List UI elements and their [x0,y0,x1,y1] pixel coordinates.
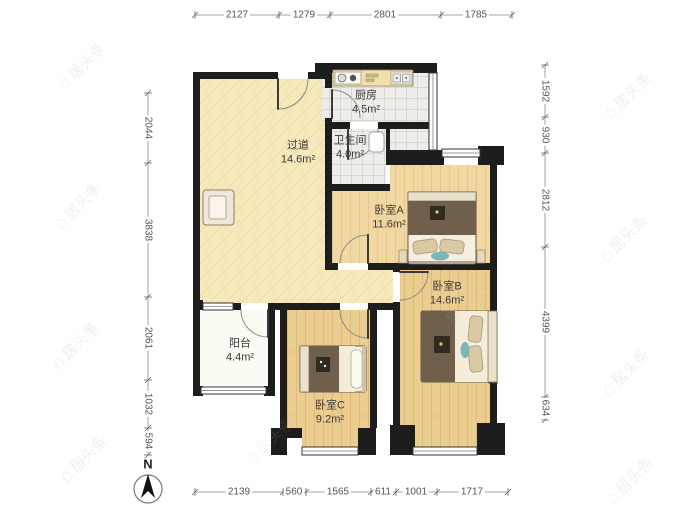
hallway-armchair [203,190,234,225]
dimension-left: 2061 [143,325,154,351]
kitchen-window [429,73,437,150]
dimension-left: 594 [143,431,154,452]
floor-plan-svg [0,0,680,510]
dimension-right: 2812 [540,187,551,213]
dimension-top: 2127 [224,10,250,21]
dimension-top: 1279 [291,10,317,21]
dimension-bottom: 2139 [226,487,252,498]
room-label-kitchen: 厨房4.5m² [352,89,380,118]
dimension-right: 4399 [540,309,551,335]
compass [134,474,162,503]
bedroomA-window [442,149,480,157]
dimension-right: 1592 [540,78,551,104]
bedroomA-bed [399,192,485,264]
dimension-top: 2801 [372,10,398,21]
bathroom-basin [369,132,384,152]
hallway-balcony-window [203,303,233,310]
north-arrow-icon [141,474,155,498]
room-label-bedroomA: 卧室A11.6m² [372,204,405,233]
dimension-right: 930 [540,125,551,146]
dimension-left: 3838 [143,217,154,243]
dimension-bottom: 560 [284,487,305,498]
dimension-right: 634 [540,398,551,419]
kitchen-counter [333,70,413,86]
balcony-window [201,387,266,394]
room-label-bedroomC: 卧室C9.2m² [315,399,345,428]
room-label-bathroom: 卫生间4.0m² [334,134,367,163]
dimension-bottom: 1001 [403,487,429,498]
dimension-bottom: 1565 [325,487,351,498]
room-label-balcony: 阳台4.4m² [226,337,254,366]
floor-plan-canvas: ⌂居头条 ⌂居头条 ⌂居头条 ⌂居头条 ⌂居头条 ⌂居头条 ⌂居头条 ⌂居头条 … [0,0,680,510]
room-label-hallway: 过道14.6m² [281,139,315,168]
bedroomC-bed [300,346,366,392]
dimension-bottom: 1717 [459,487,485,498]
room-label-bedroomB: 卧室B14.6m² [430,280,464,309]
north-label: N [143,457,152,472]
bedroomB-bay-window [413,447,477,455]
dimension-left: 2044 [143,115,154,141]
bedroomC-bay-window [302,447,358,455]
dimension-top: 1785 [463,10,489,21]
dimension-left: 1032 [143,391,154,417]
dimension-bottom: 611 [373,487,393,498]
